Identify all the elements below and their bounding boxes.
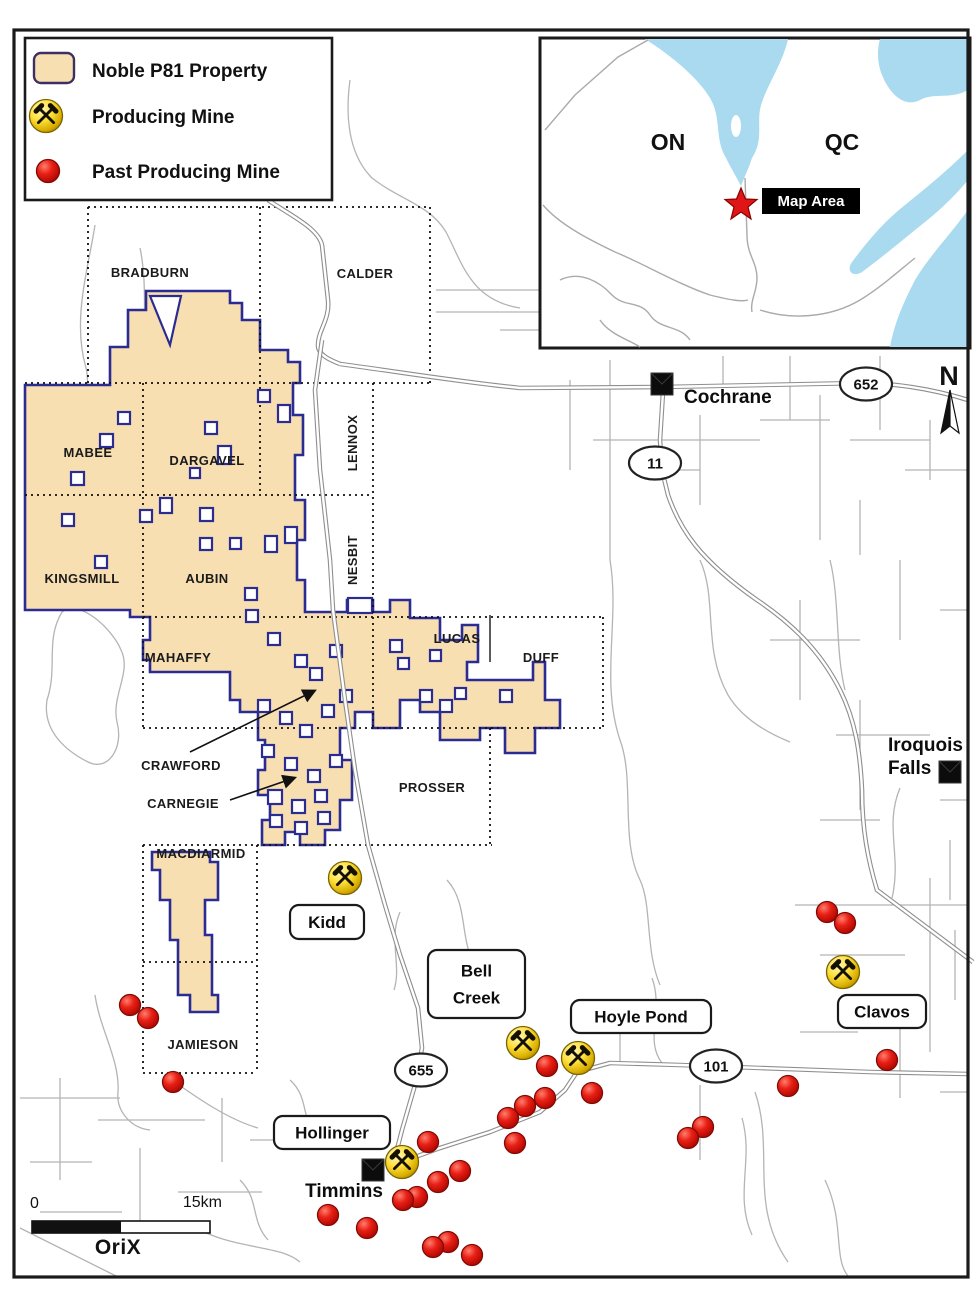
legend-past-label: Past Producing Mine: [92, 162, 280, 183]
property-swatch: [34, 53, 74, 83]
past-producing-mine-dot: [423, 1237, 444, 1258]
past-producing-mine-dot: [817, 902, 838, 923]
town-label-iroquois-falls: Iroquois: [888, 735, 963, 756]
property-exclusion: [330, 755, 342, 767]
property-exclusion: [285, 527, 297, 543]
property-exclusion: [245, 588, 257, 600]
property-exclusion: [200, 508, 213, 521]
property-exclusion: [262, 745, 274, 757]
property-exclusion: [268, 633, 280, 645]
past-producing-mine-dot: [393, 1190, 414, 1211]
property-exclusion: [455, 688, 466, 699]
scale-end-label: 15km: [183, 1194, 222, 1211]
property-exclusion: [190, 468, 200, 478]
township-label-aubin: AUBIN: [185, 571, 228, 586]
township-label-macdiarmid: MACDIARMID: [156, 846, 245, 861]
legend-property-label: Noble P81 Property: [92, 61, 268, 82]
property-exclusion: [258, 700, 270, 712]
mine-label-clavos: Clavos: [854, 1003, 910, 1022]
township-label-duff: DUFF: [523, 650, 559, 665]
property-exclusion: [300, 725, 312, 737]
map-area-label: Map Area: [778, 193, 846, 210]
property-exclusion: [398, 658, 409, 669]
property-exclusion: [71, 472, 84, 485]
mine-label-kidd: Kidd: [308, 913, 346, 932]
property-exclusion: [268, 790, 282, 804]
mine-label-bell-creek: Creek: [453, 989, 501, 1008]
highway-number-655: 655: [408, 1063, 433, 1080]
past-producing-mine-dot: [462, 1245, 483, 1266]
township-label-mabee: MABEE: [64, 445, 113, 460]
mine-label-hoyle-pond: Hoyle Pond: [594, 1008, 688, 1027]
past-producing-mine-dot: [535, 1088, 556, 1109]
property-exclusion: [246, 610, 258, 622]
township-label-bradburn: BRADBURN: [111, 265, 189, 280]
property-exclusion: [285, 758, 297, 770]
township-label-nesbit: NESBIT: [345, 535, 360, 585]
property-exclusion: [230, 538, 241, 549]
township-label-calder: CALDER: [337, 266, 394, 281]
past-producing-mine-dot: [877, 1050, 898, 1071]
mine-label-hollinger: Hollinger: [295, 1124, 369, 1143]
township-label-carnegie: CARNEGIE: [147, 796, 219, 811]
inset-map: ON QC Map Area: [540, 38, 970, 348]
past-producing-mine-dot: [357, 1218, 378, 1239]
township-label-lucas: LUCAS: [434, 631, 481, 646]
town-label-iroquois-falls: Falls: [888, 758, 931, 779]
township-label-lennox: LENNOX: [345, 415, 360, 472]
property-exclusion: [295, 822, 307, 834]
property-exclusion: [295, 655, 307, 667]
property-exclusion: [62, 514, 74, 526]
island: [731, 115, 741, 137]
scale-start-label: 0: [30, 1195, 39, 1212]
property-exclusion: [200, 538, 212, 550]
ontario-label: ON: [651, 129, 686, 155]
township-label-crawford: CRAWFORD: [141, 758, 221, 773]
past-producing-mine-dot: [138, 1008, 159, 1029]
past-producing-mine-dot: [537, 1056, 558, 1077]
property-exclusion: [430, 650, 441, 661]
township-label-jamieson: JAMIESON: [167, 1037, 238, 1052]
property-exclusion: [318, 812, 330, 824]
past-producing-mine-dot: [450, 1161, 471, 1182]
property-exclusion: [322, 705, 334, 717]
past-producing-mine-dot: [505, 1133, 526, 1154]
property-exclusion: [420, 690, 432, 702]
property-exclusion: [118, 412, 130, 424]
legend: Noble P81 Property Producing Mine Past P…: [25, 38, 332, 200]
property-exclusion: [270, 815, 282, 827]
past-producing-mine-dot: [418, 1132, 439, 1153]
property-exclusion: [160, 498, 172, 513]
property-exclusion: [95, 556, 107, 568]
map-page: BRADBURNCALDERMABEEDARGAVELLENNOXKINGSMI…: [0, 0, 980, 1307]
scale-bar-filled: [32, 1221, 121, 1233]
property-exclusion: [278, 405, 290, 422]
property-exclusion: [308, 770, 320, 782]
town-label-timmins: Timmins: [305, 1181, 383, 1202]
town-label-cochrane: Cochrane: [684, 387, 772, 408]
past-producing-mine-dot: [120, 995, 141, 1016]
past-producing-mine-dot: [678, 1128, 699, 1149]
property-exclusion: [205, 422, 217, 434]
property-exclusion: [280, 712, 292, 724]
mapmaker-logo: OriX: [95, 1236, 141, 1259]
quebec-label: QC: [825, 129, 860, 155]
property-exclusion: [140, 510, 152, 522]
mine-label-box-bell-creek: [428, 950, 525, 1018]
past-producing-mine-dot: [498, 1108, 519, 1129]
past-producing-mine-icon: [37, 160, 60, 183]
past-producing-mine-dot: [318, 1205, 339, 1226]
past-producing-mine-dot: [835, 913, 856, 934]
property-exclusion: [258, 390, 270, 402]
property-exclusion: [310, 668, 322, 680]
township-label-mahaffy: MAHAFFY: [145, 650, 211, 665]
property-exclusion: [292, 800, 305, 813]
property-exclusion: [315, 790, 327, 802]
property-location-map: BRADBURNCALDERMABEEDARGAVELLENNOXKINGSMI…: [0, 0, 980, 1307]
past-producing-mine-dot: [163, 1072, 184, 1093]
property-exclusion: [265, 536, 277, 552]
north-arrow-label: N: [939, 361, 959, 391]
past-producing-mine-dot: [582, 1083, 603, 1104]
township-label-dargavel: DARGAVEL: [169, 453, 244, 468]
highway-number-652: 652: [853, 377, 878, 394]
highway-number-101: 101: [703, 1059, 728, 1076]
property-gap: [348, 598, 372, 613]
past-producing-mine-dot: [778, 1076, 799, 1097]
mine-label-bell-creek: Bell: [461, 962, 492, 981]
township-label-prosser: PROSSER: [399, 780, 466, 795]
legend-producing-label: Producing Mine: [92, 107, 235, 128]
property-exclusion: [500, 690, 512, 702]
property-exclusion: [440, 700, 452, 712]
property-exclusion: [390, 640, 402, 652]
past-producing-mine-dot: [428, 1172, 449, 1193]
highway-number-11: 11: [647, 456, 663, 473]
township-label-kingsmill: KINGSMILL: [44, 571, 119, 586]
